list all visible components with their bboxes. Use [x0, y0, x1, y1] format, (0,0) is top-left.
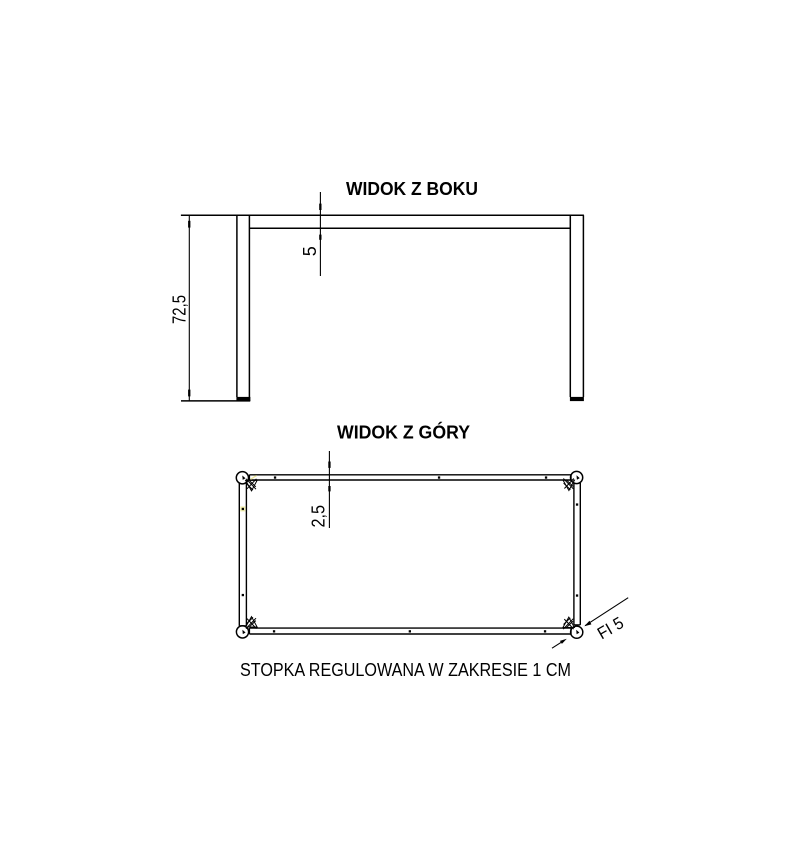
svg-text:WIDOK Z GÓRY: WIDOK Z GÓRY [337, 422, 470, 443]
svg-text:5: 5 [300, 246, 320, 256]
svg-text:STOPKA REGULOWANA W ZAKRESIE 1: STOPKA REGULOWANA W ZAKRESIE 1 CM [240, 660, 571, 680]
svg-text:72,5: 72,5 [170, 295, 190, 324]
svg-text:WIDOK Z BOKU: WIDOK Z BOKU [346, 179, 478, 199]
svg-text:2,5: 2,5 [309, 505, 329, 528]
